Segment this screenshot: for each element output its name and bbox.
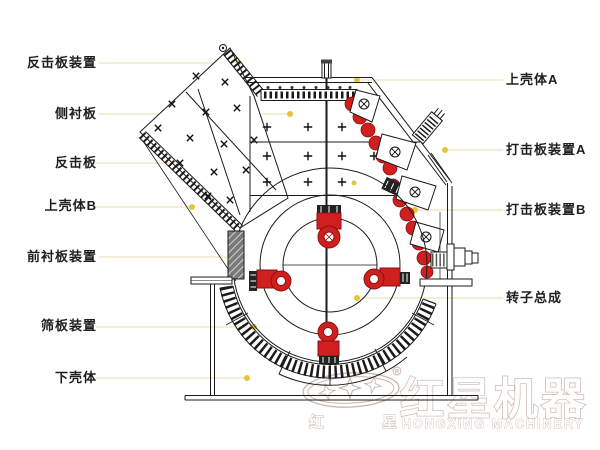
blow-bar-arc-a [345, 90, 450, 182]
logo-watermark: R 红 星 红星机器 HONGXING MACHINERY [302, 367, 588, 431]
logo-zh-left: 红 [309, 413, 324, 431]
hammer-east [364, 268, 410, 289]
label-side-liner: 侧衬板 [55, 107, 97, 121]
label-impact-plate-device: 反击板装置 [27, 56, 97, 70]
adjusting-rod [412, 106, 447, 144]
machine-drawing [139, 45, 478, 401]
leader-lines [92, 63, 503, 378]
label-upper-shell-a: 上壳体A [506, 73, 558, 87]
label-upper-shell-b: 上壳体B [45, 199, 97, 213]
label-front-liner-device: 前衬板装置 [27, 250, 97, 264]
logo-zh-right: 星 [382, 414, 397, 431]
label-rotor-assembly: 转子总成 [506, 291, 562, 305]
hammer-west [249, 270, 291, 291]
hammer-south [318, 322, 339, 364]
label-blow-bar-device-a: 打击板装置A [506, 143, 586, 157]
label-lower-shell: 下壳体 [55, 371, 97, 385]
logo-stars [317, 375, 382, 401]
crusher-diagram: R 红 星 红星机器 HONGXING MACHINERY [0, 0, 600, 450]
front-liner [228, 231, 244, 279]
label-screen-plate-device: 筛板装置 [41, 319, 97, 333]
logo-en: HONGXING MACHINERY [402, 417, 585, 431]
bolt-strip [261, 86, 357, 101]
label-blow-bar-device-b: 打击板装置B [506, 203, 586, 217]
label-impact-plate: 反击板 [55, 156, 97, 170]
hammer-north [317, 205, 341, 248]
